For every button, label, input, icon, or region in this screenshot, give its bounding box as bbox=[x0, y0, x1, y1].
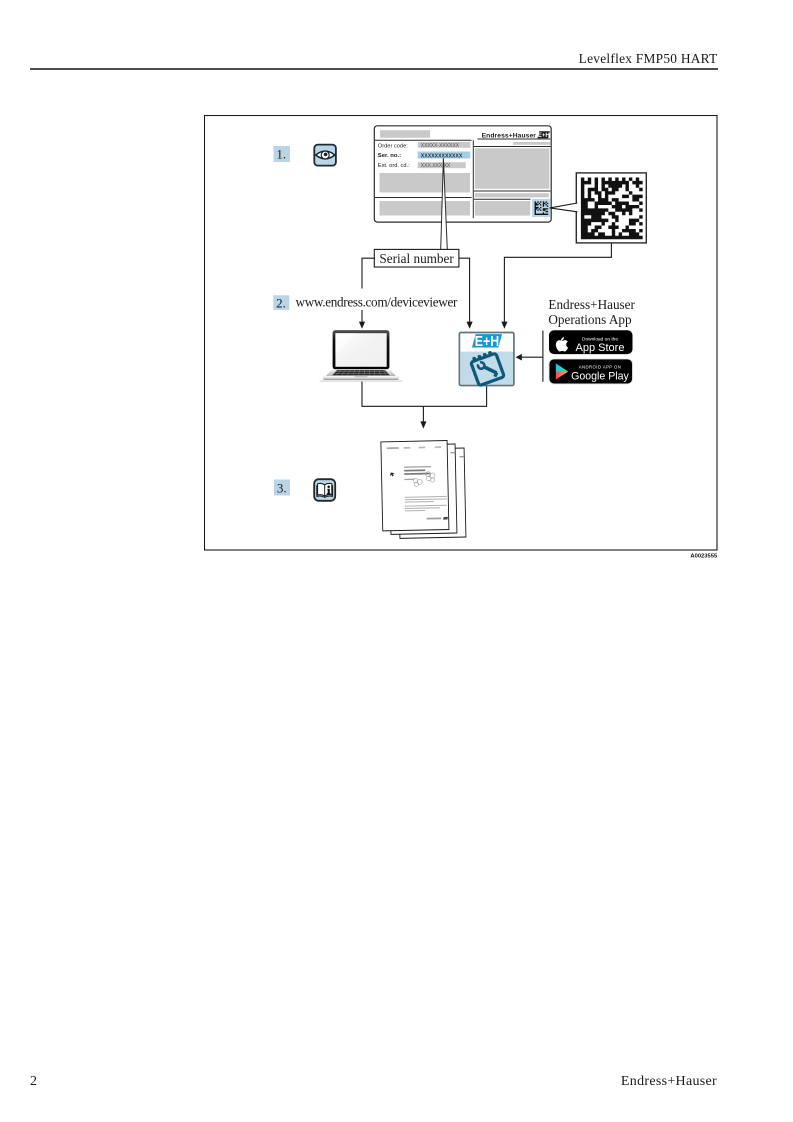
svg-text:Ext. ord. cd.:: Ext. ord. cd.: bbox=[378, 163, 410, 169]
svg-text:3.: 3. bbox=[277, 480, 287, 495]
svg-text:Google Play: Google Play bbox=[571, 371, 629, 383]
svg-text:E+H: E+H bbox=[538, 133, 550, 139]
svg-text:A0023555: A0023555 bbox=[690, 553, 718, 559]
svg-text:E+H: E+H bbox=[475, 333, 500, 350]
svg-text:ANDROID APP ON: ANDROID APP ON bbox=[579, 364, 622, 369]
svg-text:XXXXXXXXXXXX: XXXXXXXXXXXX bbox=[421, 153, 463, 159]
svg-text:Ser. no.:: Ser. no.: bbox=[378, 153, 401, 159]
svg-text:www.endress.com/deviceviewer: www.endress.com/deviceviewer bbox=[296, 295, 458, 310]
svg-text:XXXXX-XXXXXX: XXXXX-XXXXXX bbox=[421, 143, 460, 149]
svg-text:2.: 2. bbox=[276, 295, 286, 310]
svg-text:Order code:: Order code: bbox=[378, 143, 408, 149]
svg-text:Endress+Hauser: Endress+Hauser bbox=[482, 132, 537, 139]
svg-text:Endress+Hauser: Endress+Hauser bbox=[548, 297, 635, 312]
svg-text:Serial number: Serial number bbox=[379, 251, 454, 266]
svg-text:Operations App: Operations App bbox=[548, 312, 632, 327]
svg-text:1.: 1. bbox=[276, 147, 286, 162]
svg-text:App Store: App Store bbox=[576, 342, 625, 354]
svg-text:XXX.XXX.XX: XXX.XXX.XX bbox=[421, 163, 451, 169]
